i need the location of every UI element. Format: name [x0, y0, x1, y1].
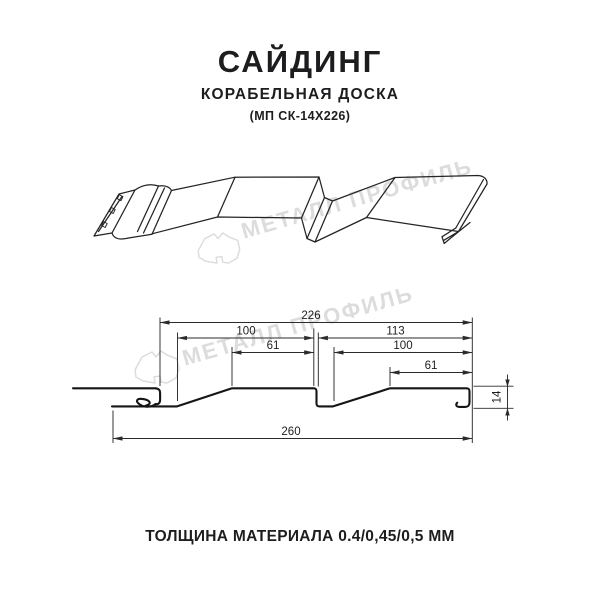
fold-edge [302, 177, 320, 218]
fold-edge [307, 198, 325, 239]
panel-front-outline [152, 217, 459, 242]
dim-label-61-right: 61 [425, 360, 438, 372]
product-diagram-page: САЙДИНГ КОРАБЕЛЬНАЯ ДОСКА (МП СК-14Х226)… [0, 0, 600, 600]
lock-fold [112, 233, 152, 239]
dim-label-100-left: 100 [236, 326, 255, 338]
end-fold [453, 223, 471, 237]
end-fold [456, 180, 484, 229]
panel-back-outline [172, 176, 488, 202]
cross-section-view [73, 388, 470, 407]
dim-arrow-14-bottom [505, 408, 509, 416]
flange-drop [156, 388, 161, 404]
dim-label-61-left: 61 [267, 340, 280, 352]
lock-fold [135, 185, 159, 190]
dim-label-226: 226 [301, 310, 320, 322]
dim-label-100-right: 100 [393, 340, 412, 352]
dim-label-260: 260 [281, 426, 300, 438]
dim-label-14: 14 [492, 390, 504, 403]
fold-edge [315, 201, 333, 242]
technical-drawing: 226 100 113 61 100 61 260 14 [0, 0, 600, 600]
end-fold [459, 184, 488, 232]
dim-label-113: 113 [386, 326, 404, 338]
profile-3d-view [94, 176, 487, 244]
dimension-labels: 226 100 113 61 100 61 260 14 [236, 310, 503, 438]
profile-outline [112, 388, 470, 407]
fold-edge [218, 177, 236, 217]
dimension-lines [113, 318, 514, 444]
lock-fold [152, 191, 172, 235]
